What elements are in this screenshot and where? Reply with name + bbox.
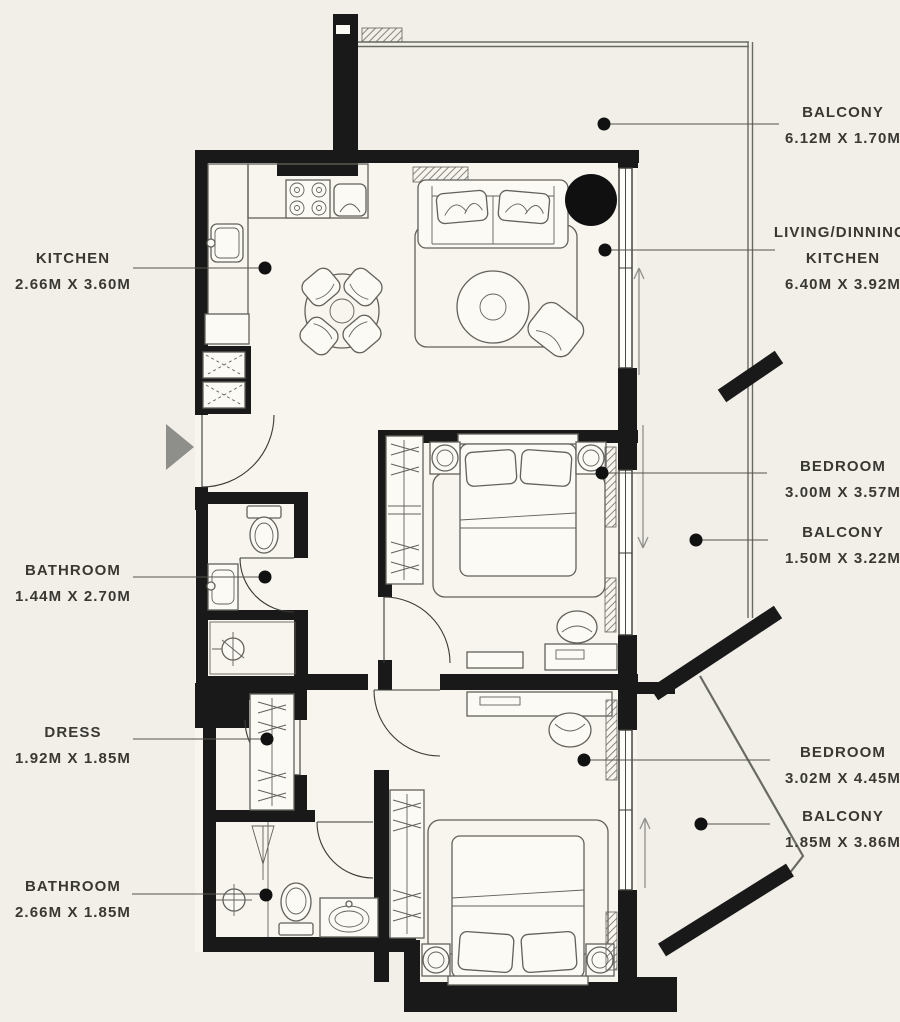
balcony-vent-hatch — [362, 28, 402, 42]
room-dims: 1.92M X 1.85M — [15, 750, 131, 767]
label-bedroom-2: BEDROOM 3.02M X 4.45M — [785, 744, 900, 787]
room-name: BATHROOM — [25, 562, 121, 579]
label-balcony-bottom: BALCONY 1.85M X 3.86M — [785, 808, 900, 851]
wardrobe-icon — [386, 436, 423, 584]
stove-icon — [286, 180, 330, 218]
leader-dot — [599, 244, 612, 257]
leader-dot — [690, 534, 703, 547]
kitchen-hob-sink-icon — [334, 184, 366, 216]
radiator-hatch — [606, 912, 617, 970]
label-bedroom-1: BEDROOM 3.00M X 3.57M — [785, 458, 900, 501]
room-name: BEDROOM — [800, 458, 886, 475]
room-name: BEDROOM — [800, 744, 886, 761]
plant-icon — [565, 174, 617, 226]
sofa-icon — [418, 180, 568, 248]
leader-dot — [578, 754, 591, 767]
label-bathroom-1: BATHROOM 1.44M X 2.70M — [15, 562, 131, 605]
toilet-icon — [279, 883, 313, 935]
label-kitchen: KITCHEN 2.66M X 3.60M — [15, 250, 131, 293]
wardrobe-icon — [390, 790, 424, 938]
leader-dot — [598, 118, 611, 131]
wardrobe-icon — [250, 694, 294, 810]
room-dims: 1.44M X 2.70M — [15, 588, 131, 605]
kitchen-sink-icon — [207, 224, 243, 262]
leader-dot — [596, 467, 609, 480]
label-bathroom-2: BATHROOM 2.66M X 1.85M — [15, 878, 131, 921]
bedroom-1-window — [619, 470, 632, 635]
room-dims: 1.85M X 3.86M — [785, 834, 900, 851]
room-dims: 6.40M X 3.92M — [785, 276, 900, 293]
entry-arrow-icon — [166, 424, 194, 470]
room-dims: 3.02M X 4.45M — [785, 770, 900, 787]
vanity-sink-icon — [320, 898, 378, 937]
leader-dot — [259, 262, 272, 275]
floor-plan-page: BALCONY 6.12M X 1.70M LIVING/DINNING/ KI… — [0, 0, 900, 1022]
living-window — [619, 168, 632, 368]
room-dims: 1.50M X 3.22M — [785, 550, 900, 567]
bathroom-sink-icon — [207, 564, 238, 610]
room-name: KITCHEN — [806, 250, 880, 267]
radiator-hatch — [605, 578, 616, 632]
label-balcony-top: BALCONY 6.12M X 1.70M — [785, 104, 900, 147]
room-name: BALCONY — [802, 808, 884, 825]
kitchen-appliance — [205, 314, 249, 344]
room-name: KITCHEN — [36, 250, 110, 267]
radiator-hatch — [606, 700, 617, 780]
leader-dot — [695, 818, 708, 831]
floor-plan-drawing: BALCONY 6.12M X 1.70M LIVING/DINNING/ KI… — [0, 0, 900, 1022]
direction-arrow-icon — [638, 425, 648, 548]
coffee-table-icon — [457, 271, 529, 343]
double-bed-icon — [458, 434, 578, 576]
label-balcony-middle: BALCONY 1.50M X 3.22M — [785, 524, 900, 567]
room-name: BALCONY — [802, 104, 884, 121]
room-name: DRESS — [44, 724, 101, 741]
room-dims: 2.66M X 3.60M — [15, 276, 131, 293]
dress-area — [250, 694, 294, 810]
room-dims: 2.66M X 1.85M — [15, 904, 131, 921]
room-name: LIVING/DINNING/ — [774, 224, 900, 241]
leader-dot — [259, 571, 272, 584]
room-name: BATHROOM — [25, 878, 121, 895]
label-living-dining-kitchen: LIVING/DINNING/ KITCHEN 6.40M X 3.92M — [774, 224, 900, 293]
leader-dot — [260, 889, 273, 902]
balcony-wall-stubs — [654, 357, 790, 950]
room-dims: 6.12M X 1.70M — [785, 130, 900, 147]
radiator-hatch — [605, 447, 616, 527]
label-dress: DRESS 1.92M X 1.85M — [15, 724, 131, 767]
room-dims: 3.00M X 3.57M — [785, 484, 900, 501]
bedroom-2-window — [619, 730, 632, 890]
direction-arrow-icon — [640, 818, 650, 888]
leader-dot — [261, 733, 274, 746]
room-name: BALCONY — [802, 524, 884, 541]
double-bed-icon — [448, 836, 588, 985]
